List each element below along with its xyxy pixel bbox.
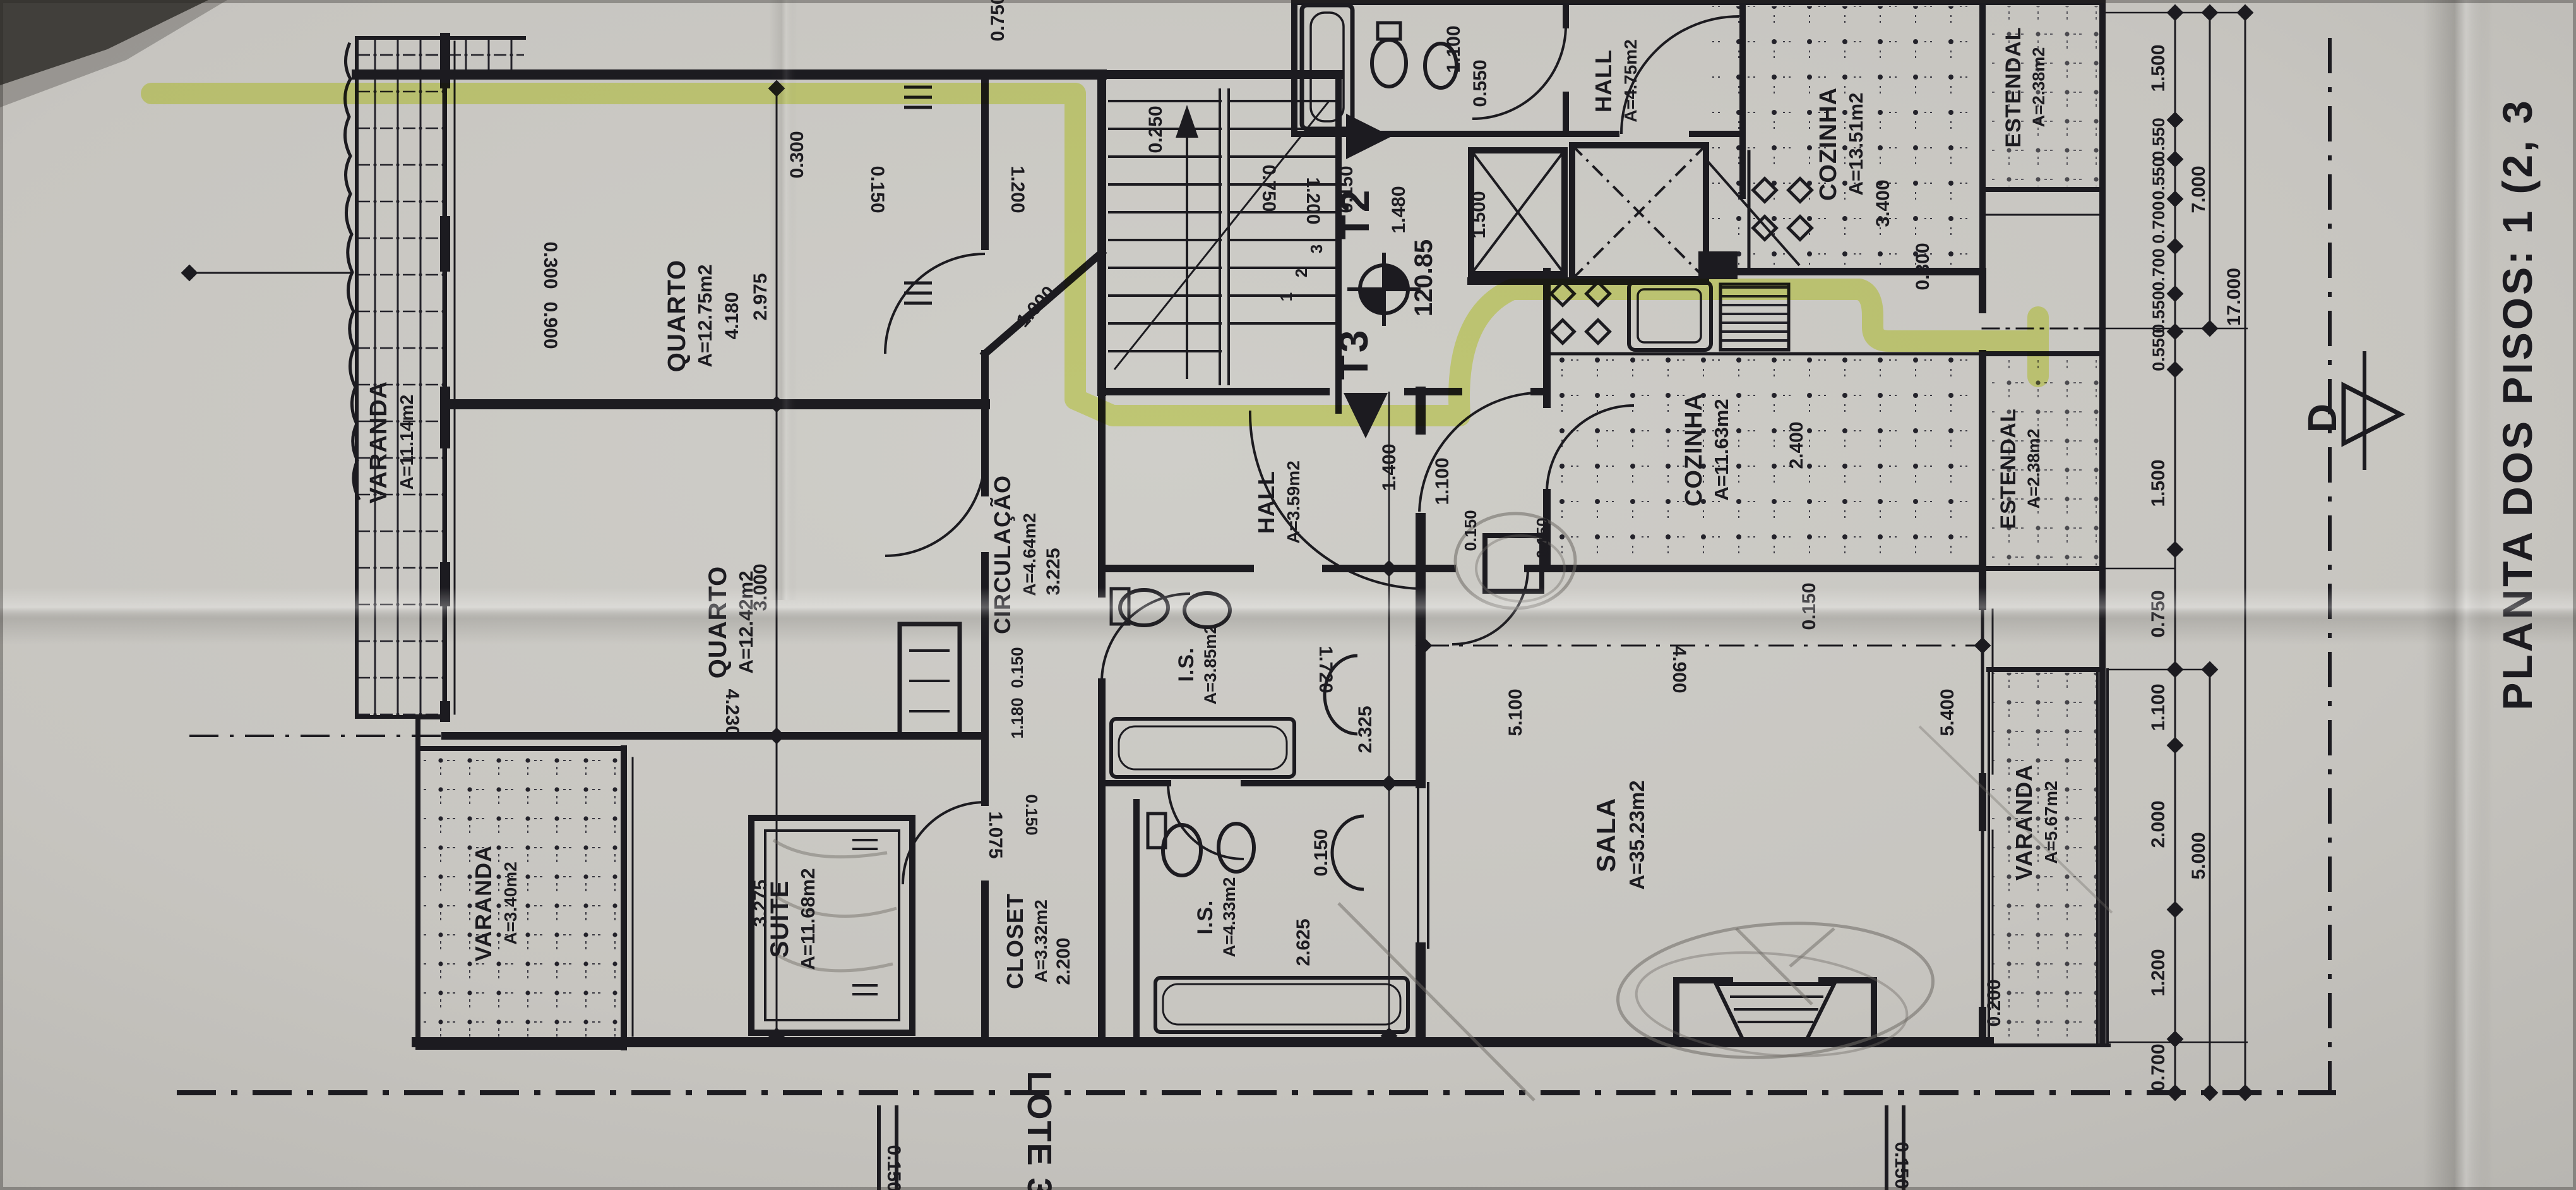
- dim-label: 5.400: [1937, 688, 1958, 736]
- dim-label: 0.550: [1470, 59, 1491, 107]
- dim-label: 1.500: [1469, 191, 1489, 238]
- dim-label: 0.300: [540, 241, 561, 289]
- room-area: A=3.32m2: [1031, 899, 1051, 983]
- room-name: ESTENDAL: [1996, 408, 2020, 529]
- dim-label: 5.100: [1505, 688, 1526, 736]
- dim-label: 0.150: [1311, 829, 1332, 876]
- room-area: A=3.59m2: [1284, 460, 1303, 544]
- dim-label: 4.180: [722, 292, 742, 339]
- t3-unit-label: T3: [1331, 328, 1376, 380]
- room-area: A=5.67m2: [2041, 781, 2061, 864]
- dim-label: 0.250: [1145, 105, 1166, 153]
- dim-label: 0.150: [867, 165, 888, 213]
- dim-label: 2.325: [1355, 706, 1376, 753]
- dim-label: 0.550: [2149, 117, 2168, 160]
- dim-label: 0.150: [883, 1145, 904, 1190]
- dim-label: 1.200: [2148, 949, 2169, 996]
- room-name: COZINHA: [1681, 393, 1707, 507]
- dim-label: 2.400: [1786, 421, 1807, 469]
- horizontal-fold-crease: [0, 587, 2576, 644]
- dim-label: 1.100: [1443, 25, 1464, 73]
- room-name: I.S.: [1174, 647, 1198, 682]
- room-area: A=2.38m2: [2029, 47, 2048, 128]
- dim-label: 4.900: [1669, 646, 1690, 693]
- dim-label: 4.230: [722, 688, 742, 736]
- dim-label: 0.700: [2149, 201, 2168, 244]
- dim-label: 1.100: [2148, 683, 2169, 731]
- dim-label: 7.000: [2188, 165, 2209, 213]
- dim-label: 0.150: [1008, 647, 1027, 688]
- dim-label: 2.200: [1053, 937, 1074, 985]
- dim-label: 2.625: [1293, 918, 1314, 966]
- dim-label: 1.200: [1303, 177, 1323, 224]
- vertical-crease: [769, 0, 797, 600]
- dim-label: 0.150: [1461, 510, 1480, 551]
- dim-label: 0.150: [1891, 1141, 1912, 1189]
- dim-label: 0.150: [1336, 165, 1357, 213]
- stair-step-number: 2: [1292, 268, 1311, 277]
- room-name: SALA: [1591, 798, 1621, 872]
- lot-label: LOTE 31: [1020, 1071, 1058, 1190]
- dim-label: 0.750: [1258, 164, 1279, 212]
- right-fold-crease: [2423, 0, 2493, 1190]
- dim-label: 1.500: [2148, 44, 2169, 92]
- room-name: VARANDA: [366, 381, 392, 503]
- room-name: VARANDA: [2011, 764, 2037, 880]
- room-area: A=11.14m2: [397, 395, 417, 490]
- room-area: A=11.63m2: [1710, 399, 1732, 500]
- dim-label: 17.000: [2224, 268, 2245, 326]
- room-area: A=3.40m2: [501, 862, 520, 945]
- dim-label: 0.550: [2149, 157, 2168, 200]
- room-area: A=12.75m2: [694, 265, 716, 368]
- room-name: ESTENDAL: [2001, 27, 2025, 147]
- room-area: A=11.68m2: [797, 868, 819, 970]
- room-area: A=35.23m2: [1625, 780, 1649, 889]
- room-area: A=13.51m2: [1845, 93, 1867, 196]
- room-area: A=4.75m2: [1621, 39, 1640, 123]
- room-area: A=4.64m2: [1020, 513, 1039, 596]
- dim-label: 0.200: [1984, 979, 2005, 1026]
- dim-label: 3.400: [1873, 179, 1893, 227]
- dim-label: 0.900: [540, 301, 561, 349]
- dim-label: 0.750: [987, 0, 1008, 42]
- dim-label: 3.275: [750, 879, 771, 927]
- room-name: HALL: [1590, 49, 1616, 112]
- room-area: A=4.33m2: [1220, 877, 1239, 958]
- dim-label: 0.700: [2149, 248, 2168, 291]
- room-name: QUARTO: [663, 260, 691, 373]
- level-value: 120.85: [1410, 239, 1438, 316]
- dim-label: 0.150: [1533, 517, 1552, 558]
- section-letter: D: [2299, 401, 2345, 433]
- dim-label: 1.500: [2148, 459, 2169, 507]
- dim-label: 1.180: [1008, 697, 1027, 738]
- dim-label: 0.700: [2148, 1043, 2169, 1091]
- room-area: A=2.38m2: [2024, 429, 2043, 509]
- dim-label: 0.550: [2149, 291, 2168, 334]
- room-name: HALL: [1253, 471, 1279, 534]
- dim-label: 0.550: [2149, 328, 2168, 371]
- dim-label: 1.075: [985, 811, 1006, 858]
- room-name: COZINHA: [1815, 87, 1842, 201]
- dim-label: 1.720: [1315, 646, 1336, 693]
- dim-label: 1.200: [1007, 165, 1028, 213]
- dim-label: 0.150: [1022, 794, 1041, 835]
- stair-step-number: 3: [1307, 244, 1326, 253]
- room-name: CLOSET: [1002, 893, 1028, 989]
- floorplan-photo: T2 1.480 120.85 T3 D 1 2 3 VARANDA A=11.…: [0, 0, 2576, 1190]
- dim-label: 1.100: [1432, 457, 1453, 505]
- floorplan-drawing: T2 1.480 120.85 T3 D 1 2 3 VARANDA A=11.…: [0, 0, 2576, 1190]
- dim-label: 5.000: [2188, 832, 2209, 879]
- dim-label: 0.300: [1912, 243, 1933, 290]
- dim-label: 2.975: [750, 273, 771, 320]
- dim-label: 2.000: [2148, 800, 2169, 848]
- dim-label: 1.400: [1379, 443, 1400, 491]
- door-threshold: [1698, 251, 1738, 279]
- room-name: I.S.: [1193, 899, 1217, 934]
- stair-step-number: 1: [1277, 292, 1296, 301]
- level-offset: 1.480: [1388, 186, 1409, 233]
- room-name: VARANDA: [470, 845, 496, 961]
